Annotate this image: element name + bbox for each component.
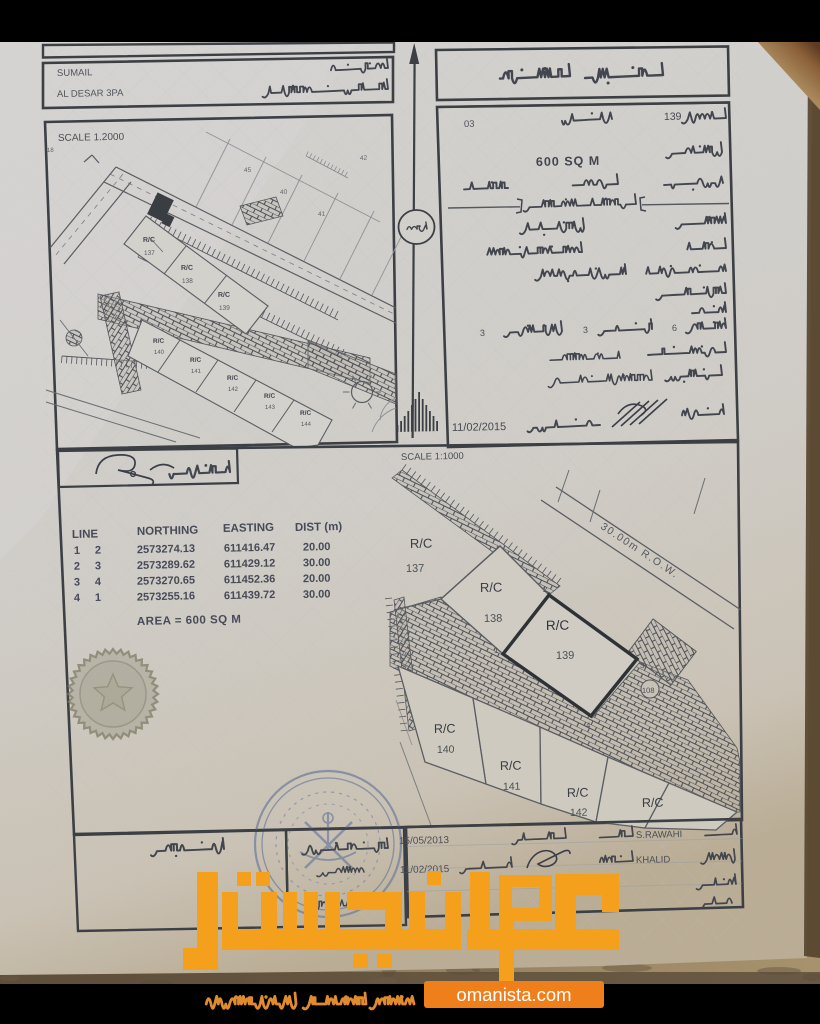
svg-text:139: 139 — [664, 111, 682, 123]
svg-text:SCALE 1.2000: SCALE 1.2000 — [58, 132, 125, 144]
svg-text:1: 1 — [494, 646, 499, 655]
svg-text:137: 137 — [406, 563, 425, 575]
svg-text:R/C: R/C — [227, 375, 239, 382]
svg-text:141: 141 — [191, 369, 202, 375]
svg-text:2573274.13: 2573274.13 — [137, 543, 195, 556]
svg-text:LINE: LINE — [72, 528, 99, 541]
svg-text:R/C: R/C — [143, 237, 155, 244]
svg-text:45: 45 — [244, 167, 252, 174]
svg-text:S.RAWAHI: S.RAWAHI — [636, 829, 682, 841]
svg-text:2: 2 — [95, 544, 101, 556]
svg-text:NORTHING: NORTHING — [137, 525, 199, 538]
svg-text:143: 143 — [265, 405, 276, 411]
svg-text:SCALE 1:1000: SCALE 1:1000 — [401, 451, 464, 463]
svg-text:138: 138 — [484, 613, 503, 625]
svg-text:15/05/2013: 15/05/2013 — [399, 835, 450, 847]
svg-text:3: 3 — [583, 325, 588, 335]
svg-text:R/C: R/C — [567, 786, 589, 800]
svg-text:142: 142 — [228, 387, 239, 393]
svg-text:139: 139 — [556, 650, 575, 662]
svg-text:R/C: R/C — [546, 618, 570, 633]
svg-text:omanista.com: omanista.com — [456, 984, 571, 1005]
svg-text:R/C: R/C — [500, 759, 522, 773]
svg-text:611416.47: 611416.47 — [224, 542, 276, 555]
svg-text:137: 137 — [144, 250, 155, 257]
svg-text:2573270.65: 2573270.65 — [137, 574, 195, 587]
svg-text:42: 42 — [360, 155, 368, 162]
svg-text:140: 140 — [437, 744, 455, 756]
svg-text:30.00: 30.00 — [303, 588, 331, 601]
svg-text:R/C: R/C — [190, 357, 202, 364]
svg-text:18: 18 — [47, 148, 54, 154]
svg-text:1: 1 — [95, 592, 101, 604]
svg-text:140: 140 — [154, 350, 165, 356]
svg-text:40: 40 — [280, 189, 288, 196]
svg-text:108: 108 — [642, 686, 655, 695]
svg-text:KHALID: KHALID — [636, 854, 671, 866]
svg-text:03: 03 — [464, 119, 475, 130]
svg-text:2: 2 — [74, 561, 80, 573]
svg-text:R/C: R/C — [153, 338, 165, 345]
svg-text:611452.36: 611452.36 — [224, 573, 276, 586]
svg-text:4: 4 — [586, 721, 591, 730]
svg-text:SUMAIL: SUMAIL — [57, 67, 93, 79]
svg-text:R/C: R/C — [264, 393, 276, 400]
svg-text:138: 138 — [182, 278, 193, 285]
svg-text:30.00: 30.00 — [303, 557, 331, 570]
svg-text:144: 144 — [301, 422, 312, 428]
svg-text:EASTING: EASTING — [223, 522, 274, 535]
svg-text:41: 41 — [318, 211, 326, 218]
svg-text:3: 3 — [640, 661, 645, 670]
svg-text:R/C: R/C — [410, 536, 433, 551]
svg-text:3: 3 — [480, 328, 485, 338]
svg-text:R/C: R/C — [218, 292, 230, 299]
svg-text:R/C: R/C — [181, 265, 193, 272]
svg-text:AREA = 600 SQ M: AREA = 600 SQ M — [137, 614, 242, 628]
svg-text:611439.72: 611439.72 — [224, 589, 276, 602]
svg-text:139: 139 — [219, 305, 230, 312]
svg-text:1: 1 — [74, 545, 80, 557]
svg-text:11/02/2015: 11/02/2015 — [400, 864, 450, 876]
svg-text:3: 3 — [74, 576, 80, 588]
svg-text:R/C: R/C — [480, 580, 503, 595]
svg-text:2573289.62: 2573289.62 — [137, 559, 195, 572]
svg-text:AL DESAR 3PA: AL DESAR 3PA — [57, 88, 124, 100]
svg-text:2573255.16: 2573255.16 — [137, 590, 195, 603]
svg-text:R/C: R/C — [642, 796, 664, 810]
svg-text:6: 6 — [672, 323, 677, 333]
svg-text:142: 142 — [570, 807, 588, 819]
svg-text:20.00: 20.00 — [303, 573, 331, 586]
svg-text:11/02/2015: 11/02/2015 — [452, 421, 506, 434]
svg-text:2: 2 — [543, 585, 548, 594]
svg-text:R/C: R/C — [434, 722, 456, 736]
svg-text:611429.12: 611429.12 — [224, 557, 276, 570]
svg-text:20.00: 20.00 — [303, 541, 331, 554]
svg-text:R/C: R/C — [300, 410, 312, 417]
svg-text:3: 3 — [95, 560, 101, 572]
svg-text:600 SQ M: 600 SQ M — [536, 154, 601, 169]
svg-text:DIST (m): DIST (m) — [295, 521, 343, 534]
svg-text:141: 141 — [503, 781, 521, 793]
